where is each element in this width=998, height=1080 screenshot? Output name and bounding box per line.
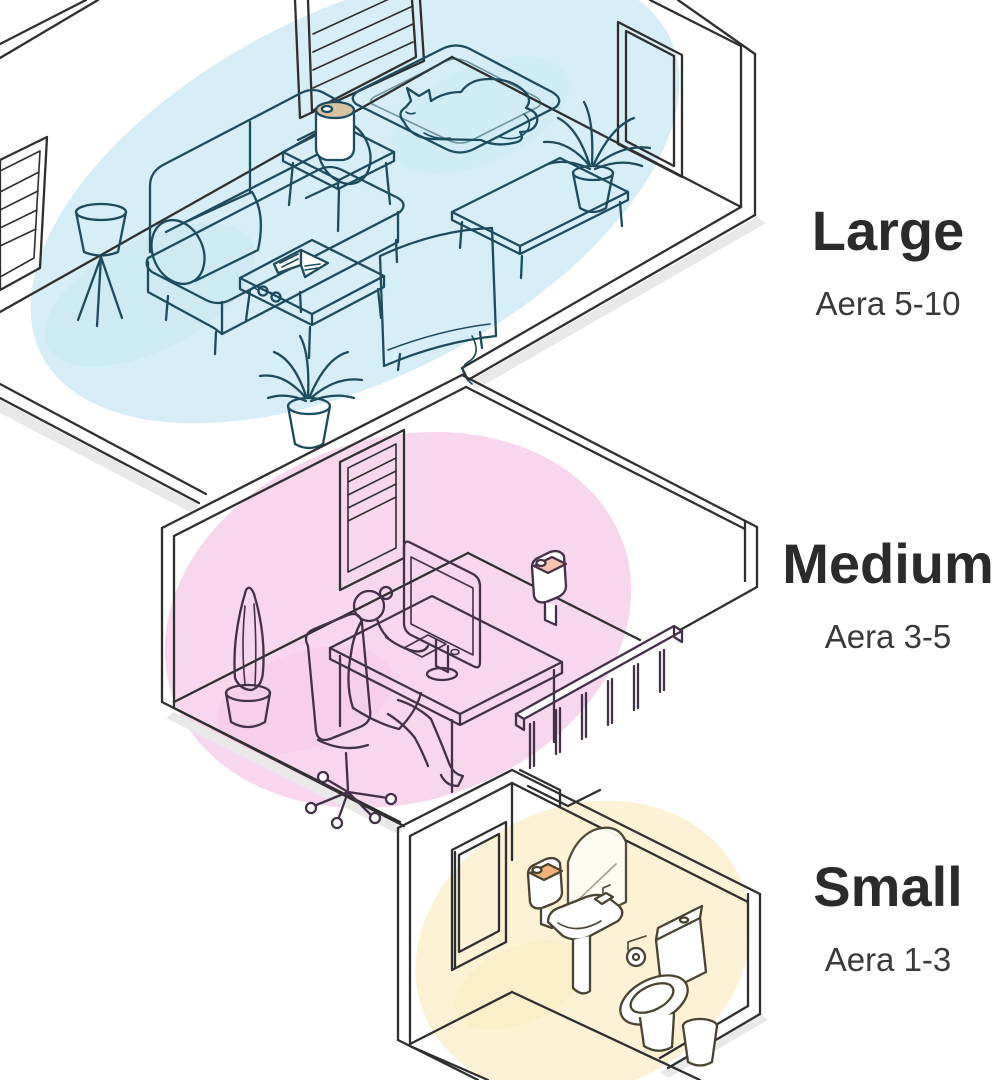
label-block-medium: Medium Aera 3-5 <box>752 536 998 653</box>
room-size-model-medium: Aera 3-5 <box>752 620 998 653</box>
aera-diffuser-living <box>316 102 354 160</box>
waste-basket <box>683 1019 717 1066</box>
left-window-blinds <box>0 137 47 290</box>
room-size-model-small: Aera 1-3 <box>752 943 998 976</box>
room-size-title-large: Large <box>752 203 998 259</box>
label-block-small: Small Aera 1-3 <box>752 859 998 976</box>
aera-room-size-diagram: Large Aera 5-10 Medium Aera 3-5 Small Ae… <box>0 0 998 1080</box>
room-size-title-small: Small <box>752 859 998 915</box>
room-size-title-medium: Medium <box>752 536 998 592</box>
label-block-large: Large Aera 5-10 <box>752 203 998 320</box>
room-size-model-large: Aera 5-10 <box>752 287 998 320</box>
